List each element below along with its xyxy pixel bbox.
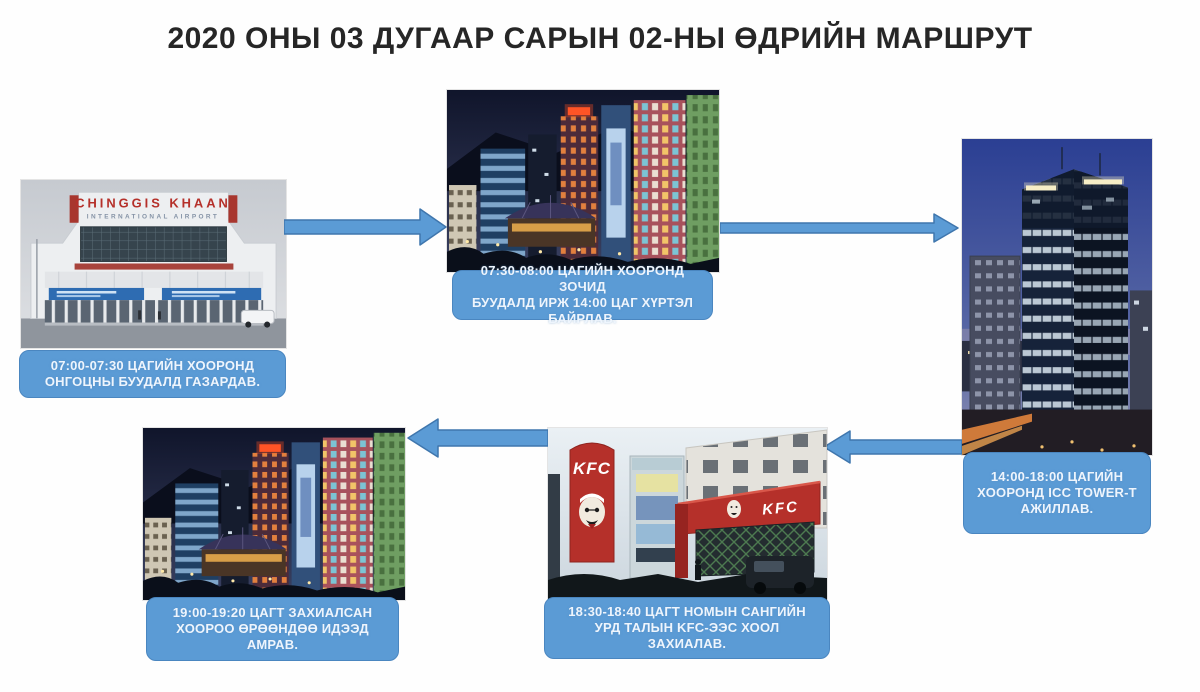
photo-hotel-night <box>143 428 405 600</box>
photo-airport: CHINGGIS KHAAN INTERNATIONAL AIRPORT <box>21 180 286 348</box>
photo-kfc: KFC KFC <box>548 428 827 600</box>
caption-hotel-checkin: 07:30-08:00 ЦАГИЙН ХООРОНД ЗОЧИД БУУДАЛД… <box>452 270 713 320</box>
arrow-right-icon <box>284 206 448 248</box>
airport-sign-name: CHINGGIS KHAAN <box>75 195 231 210</box>
arrow-left-icon <box>406 416 548 460</box>
arrow-right-icon <box>720 212 960 244</box>
kfc-awning-sign-text: KFC <box>762 498 800 518</box>
caption-hotel-rest: 19:00-19:20 ЦАГТ ЗАХИАЛСАН ХООРОО ӨРӨӨНД… <box>146 597 399 661</box>
arrow-left-icon <box>822 428 962 466</box>
caption-icc-work: 14:00-18:00 ЦАГИЙН ХООРОНД ICC TOWER-Т А… <box>963 452 1151 534</box>
page-title: 2020 ОНЫ 03 ДУГААР САРЫН 02-НЫ ӨДРИЙН МА… <box>0 22 1200 56</box>
photo-hotel-night <box>447 90 719 272</box>
caption-kfc-order: 18:30-18:40 ЦАГТ НОМЫН САНГИЙН УРД ТАЛЫН… <box>544 597 830 659</box>
airport-sign-subtitle: INTERNATIONAL AIRPORT <box>87 214 219 221</box>
kfc-pylon-sign-text: KFC <box>573 459 611 478</box>
photo-icc-tower <box>962 139 1152 455</box>
caption-airport-arrival: 07:00-07:30 ЦАГИЙН ХООРОНД ОНГОЦНЫ БУУДА… <box>19 350 286 398</box>
route-diagram-page: 2020 ОНЫ 03 ДУГААР САРЫН 02-НЫ ӨДРИЙН МА… <box>0 0 1200 692</box>
